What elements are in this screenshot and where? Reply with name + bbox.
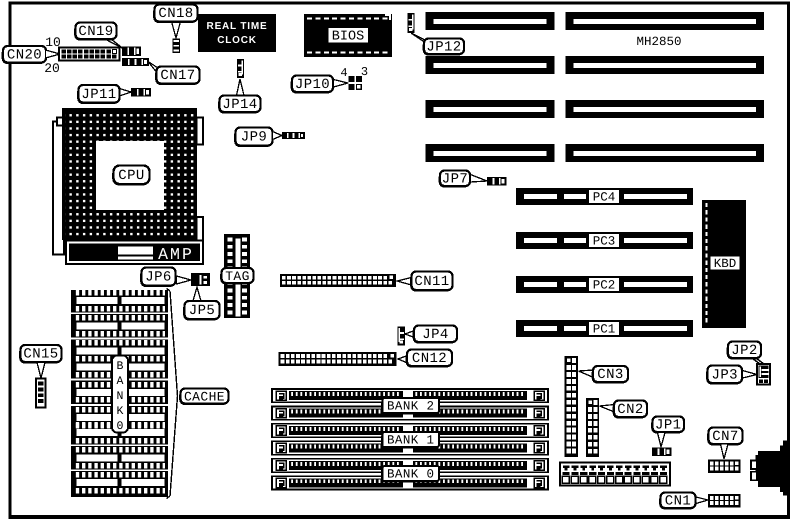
svg-text:N: N <box>117 390 124 403</box>
svg-text:BANK 1: BANK 1 <box>387 434 434 448</box>
svg-text:A: A <box>117 375 124 388</box>
svg-text:CN12: CN12 <box>412 351 447 367</box>
svg-text:PC2: PC2 <box>593 278 616 292</box>
svg-text:JP2: JP2 <box>731 343 757 359</box>
svg-text:PC3: PC3 <box>593 234 616 248</box>
svg-text:CN2: CN2 <box>617 402 643 418</box>
svg-text:JP7: JP7 <box>442 171 468 187</box>
svg-text:JP6: JP6 <box>145 270 171 286</box>
svg-text:CN1: CN1 <box>665 493 691 509</box>
svg-text:CN20: CN20 <box>7 47 42 63</box>
svg-text:JP11: JP11 <box>81 87 116 103</box>
svg-text:JP1: JP1 <box>655 417 681 433</box>
svg-text:CN18: CN18 <box>158 6 193 22</box>
svg-text:20: 20 <box>44 61 60 76</box>
svg-text:PC1: PC1 <box>593 322 616 336</box>
svg-text:TAG: TAG <box>225 269 250 284</box>
svg-text:0: 0 <box>117 420 124 433</box>
svg-text:B: B <box>117 360 124 373</box>
svg-text:CN3: CN3 <box>597 367 623 383</box>
svg-text:CN7: CN7 <box>712 429 738 445</box>
svg-text:JP9: JP9 <box>241 130 267 146</box>
svg-text:CN11: CN11 <box>414 274 449 290</box>
svg-text:BIOS: BIOS <box>332 30 364 45</box>
svg-text:MH2850: MH2850 <box>636 35 681 49</box>
svg-text:4: 4 <box>340 66 347 80</box>
svg-text:CACHE: CACHE <box>184 390 225 405</box>
svg-text:JP3: JP3 <box>712 367 738 383</box>
svg-text:JP5: JP5 <box>189 303 215 319</box>
svg-text:CN17: CN17 <box>160 68 195 84</box>
svg-text:CLOCK: CLOCK <box>217 35 257 46</box>
svg-text:JP12: JP12 <box>426 39 461 55</box>
svg-text:AMP: AMP <box>158 245 194 264</box>
svg-text:BANK 2: BANK 2 <box>387 400 434 414</box>
svg-text:K: K <box>117 405 124 418</box>
svg-text:CPU: CPU <box>118 168 144 184</box>
svg-text:PC4: PC4 <box>593 190 616 204</box>
svg-text:REAL TIME: REAL TIME <box>207 21 268 32</box>
svg-text:JP4: JP4 <box>422 327 448 343</box>
svg-text:BANK 0: BANK 0 <box>387 468 434 482</box>
svg-text:KBD: KBD <box>714 257 737 271</box>
svg-text:JP10: JP10 <box>295 77 330 93</box>
svg-text:CN19: CN19 <box>78 24 113 40</box>
svg-text:CN15: CN15 <box>23 347 58 363</box>
svg-text:JP14: JP14 <box>222 97 257 113</box>
